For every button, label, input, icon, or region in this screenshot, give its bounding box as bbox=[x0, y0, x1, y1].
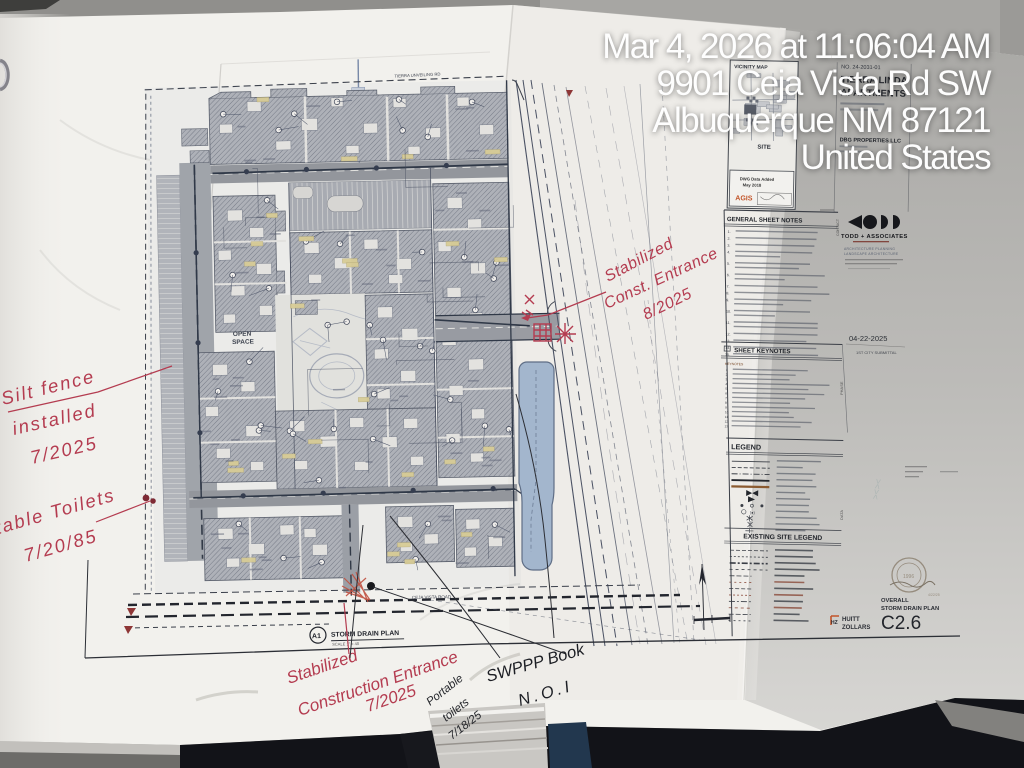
svg-text:DWG Data Added: DWG Data Added bbox=[740, 176, 775, 182]
svg-text:4.: 4. bbox=[727, 250, 730, 254]
svg-text:PHASE: PHASE bbox=[839, 381, 844, 395]
svg-text:9: 9 bbox=[725, 406, 727, 410]
svg-text:HZ: HZ bbox=[831, 620, 838, 626]
svg-text:7: 7 bbox=[725, 396, 727, 400]
svg-text:STORM DRAIN PLAN: STORM DRAIN PLAN bbox=[881, 606, 939, 612]
svg-text:(●): (●) bbox=[750, 510, 756, 515]
svg-text:May 2018: May 2018 bbox=[743, 182, 762, 187]
svg-text:8: 8 bbox=[725, 401, 727, 405]
svg-text:KEYNOTES: KEYNOTES bbox=[725, 362, 744, 366]
svg-text:OVERALL: OVERALL bbox=[881, 598, 909, 604]
svg-text:DATA: DATA bbox=[839, 510, 844, 520]
svg-text:7.: 7. bbox=[726, 285, 729, 289]
svg-text:AGIS: AGIS bbox=[735, 195, 753, 202]
svg-text:LEGEND: LEGEND bbox=[731, 442, 761, 452]
svg-text:6: 6 bbox=[725, 392, 727, 396]
svg-text:4/22/25: 4/22/25 bbox=[928, 593, 940, 597]
svg-text:10.: 10. bbox=[726, 310, 731, 314]
svg-text:1.: 1. bbox=[728, 230, 731, 234]
svg-text:C2.6: C2.6 bbox=[881, 613, 921, 634]
svg-text:CEJA VISTA ROAD: CEJA VISTA ROAD bbox=[412, 594, 452, 600]
svg-text:6.: 6. bbox=[727, 273, 730, 277]
svg-text:1ST CITY SUBMITTAL: 1ST CITY SUBMITTAL bbox=[856, 350, 897, 355]
svg-text:ZOLLARS: ZOLLARS bbox=[842, 625, 870, 631]
svg-text:SHEET KEYNOTES: SHEET KEYNOTES bbox=[734, 347, 791, 355]
svg-text:2.: 2. bbox=[727, 237, 730, 241]
svg-text:3.: 3. bbox=[727, 244, 730, 248]
svg-text:TODD + ASSOCIATES: TODD + ASSOCIATES bbox=[841, 234, 908, 240]
svg-text:A1: A1 bbox=[312, 633, 321, 640]
svg-text:CONTACT: CONTACT bbox=[836, 218, 840, 236]
svg-text:HUITT: HUITT bbox=[842, 617, 860, 623]
svg-text:1996: 1996 bbox=[903, 574, 914, 580]
svg-text:LANDSCAPE ARCHITECTURE: LANDSCAPE ARCHITECTURE bbox=[844, 252, 899, 256]
svg-text:5.: 5. bbox=[727, 262, 730, 266]
svg-text:9.: 9. bbox=[726, 298, 729, 302]
svg-text:SCALE 1" = 40: SCALE 1" = 40 bbox=[332, 641, 360, 647]
svg-text:8.: 8. bbox=[726, 291, 729, 295]
svg-text:ARCHITECTURE PLANNING: ARCHITECTURE PLANNING bbox=[844, 247, 895, 251]
svg-text:04-22-2025: 04-22-2025 bbox=[849, 334, 887, 343]
svg-text:14.: 14. bbox=[725, 346, 730, 350]
